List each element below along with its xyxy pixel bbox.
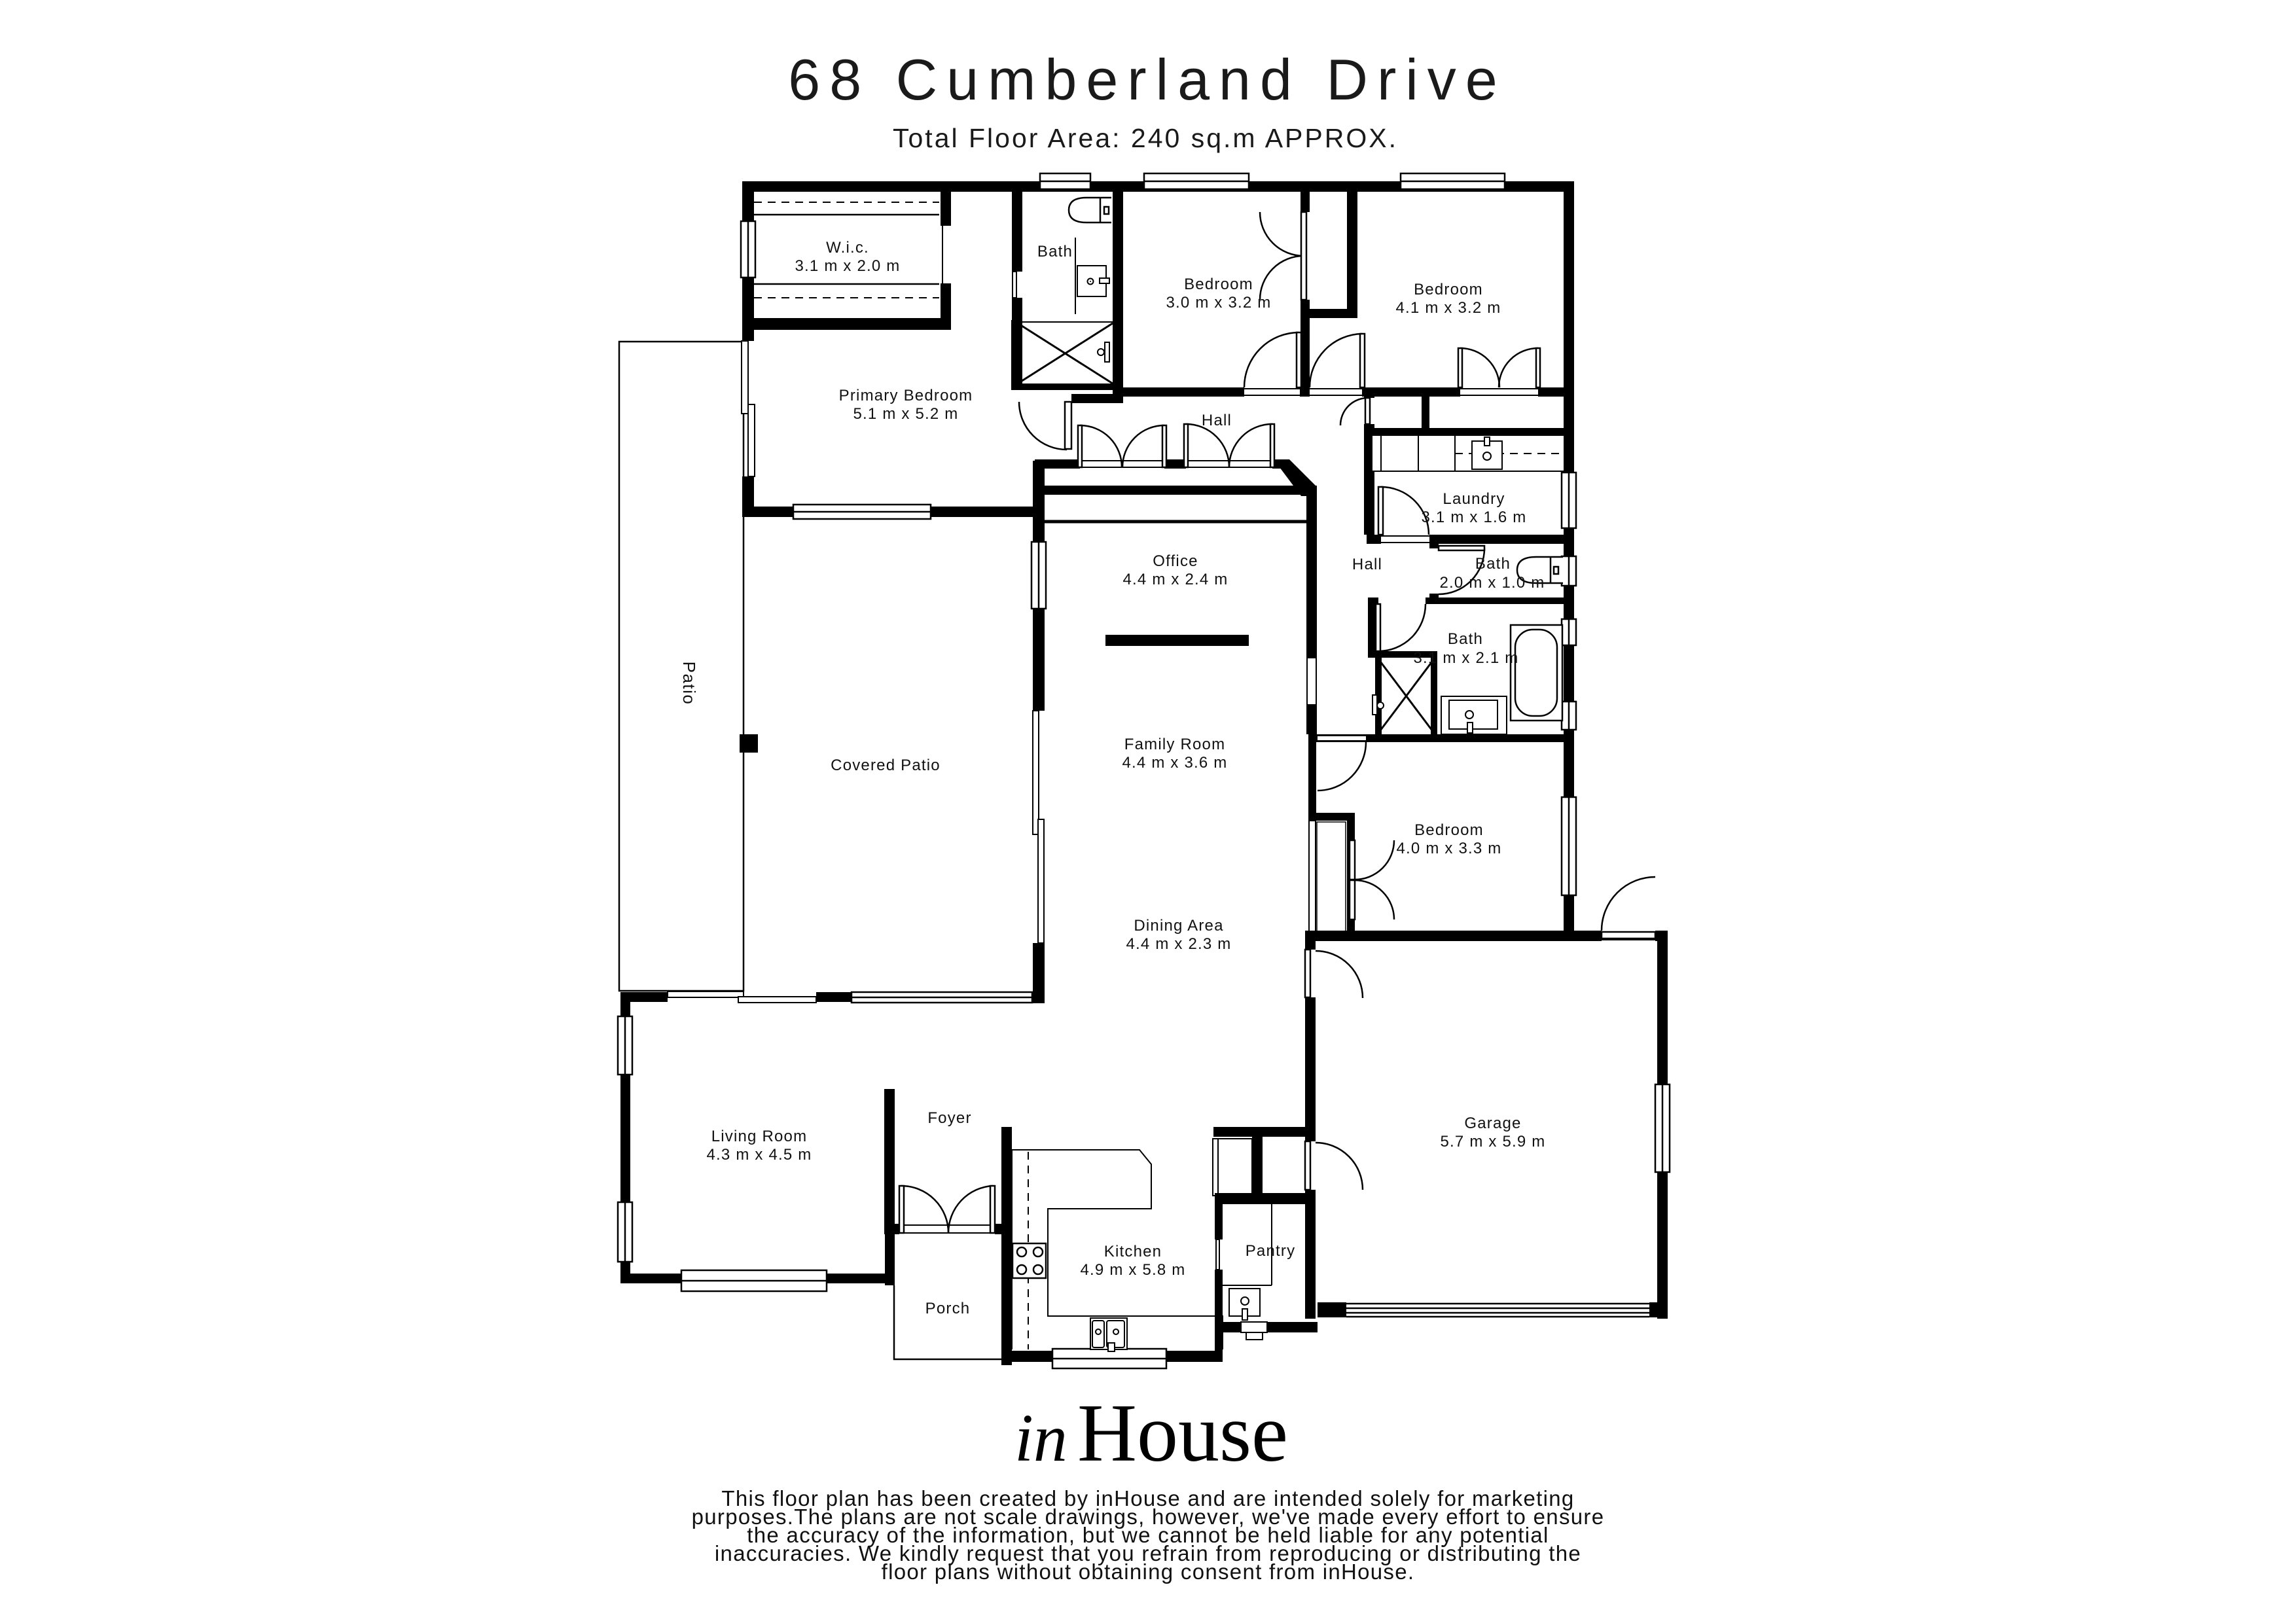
- svg-text:Bath: Bath: [1037, 243, 1073, 260]
- svg-text:Total Floor Area: 240 sq.m APP: Total Floor Area: 240 sq.m APPROX.: [893, 123, 1398, 153]
- svg-text:Porch: Porch: [925, 1300, 971, 1317]
- svg-text:3.0 m x 3.2 m: 3.0 m x 3.2 m: [1166, 294, 1272, 312]
- svg-text:Bedroom: Bedroom: [1414, 281, 1483, 298]
- svg-text:Kitchen: Kitchen: [1104, 1243, 1162, 1260]
- svg-text:3.1 m x 2.1 m: 3.1 m x 2.1 m: [1414, 649, 1519, 667]
- svg-text:Office: Office: [1153, 552, 1198, 570]
- svg-text:in: in: [1014, 1400, 1067, 1476]
- svg-text:Hall: Hall: [1202, 412, 1232, 429]
- svg-text:4.4 m x 2.3 m: 4.4 m x 2.3 m: [1126, 935, 1232, 953]
- svg-text:4.9 m x 5.8 m: 4.9 m x 5.8 m: [1081, 1261, 1186, 1279]
- svg-text:Bedroom: Bedroom: [1414, 821, 1484, 839]
- svg-text:Family Room: Family Room: [1124, 736, 1226, 753]
- svg-text:Hall: Hall: [1352, 556, 1382, 573]
- svg-text:House: House: [1077, 1388, 1288, 1479]
- svg-text:4.4 m x 2.4 m: 4.4 m x 2.4 m: [1123, 571, 1229, 588]
- svg-text:Bedroom: Bedroom: [1184, 276, 1253, 293]
- svg-text:Patio: Patio: [679, 662, 699, 705]
- svg-text:3.1 m x 1.6 m: 3.1 m x 1.6 m: [1422, 508, 1527, 526]
- svg-text:Covered Patio: Covered Patio: [831, 757, 941, 774]
- svg-text:3.1 m x 2.0 m: 3.1 m x 2.0 m: [795, 257, 901, 275]
- svg-text:68 Cumberland Drive: 68 Cumberland Drive: [788, 47, 1507, 112]
- svg-text:Laundry: Laundry: [1443, 490, 1505, 508]
- svg-text:4.4 m x 3.6 m: 4.4 m x 3.6 m: [1122, 754, 1228, 772]
- svg-text:5.7 m x 5.9 m: 5.7 m x 5.9 m: [1441, 1133, 1546, 1150]
- svg-text:Primary Bedroom: Primary Bedroom: [839, 387, 973, 404]
- svg-text:Dining Area: Dining Area: [1134, 917, 1223, 935]
- svg-text:W.i.c.: W.i.c.: [826, 239, 869, 257]
- svg-text:5.1 m x 5.2 m: 5.1 m x 5.2 m: [853, 405, 959, 423]
- svg-text:Bath: Bath: [1448, 630, 1483, 648]
- svg-text:4.0 m x 3.3 m: 4.0 m x 3.3 m: [1397, 840, 1502, 857]
- svg-text:Foyer: Foyer: [927, 1109, 971, 1127]
- svg-text:Living Room: Living Room: [711, 1128, 808, 1145]
- svg-text:4.3 m x 4.5 m: 4.3 m x 4.5 m: [707, 1146, 812, 1164]
- svg-text:Bath: Bath: [1475, 555, 1511, 573]
- svg-text:4.1 m x 3.2 m: 4.1 m x 3.2 m: [1396, 299, 1501, 317]
- svg-text:floor plans without obtaining: floor plans without obtaining consent fr…: [882, 1560, 1415, 1584]
- svg-text:Pantry: Pantry: [1246, 1242, 1296, 1260]
- svg-text:2.0 m x 1.0 m: 2.0 m x 1.0 m: [1440, 574, 1545, 592]
- svg-text:Garage: Garage: [1464, 1115, 1521, 1132]
